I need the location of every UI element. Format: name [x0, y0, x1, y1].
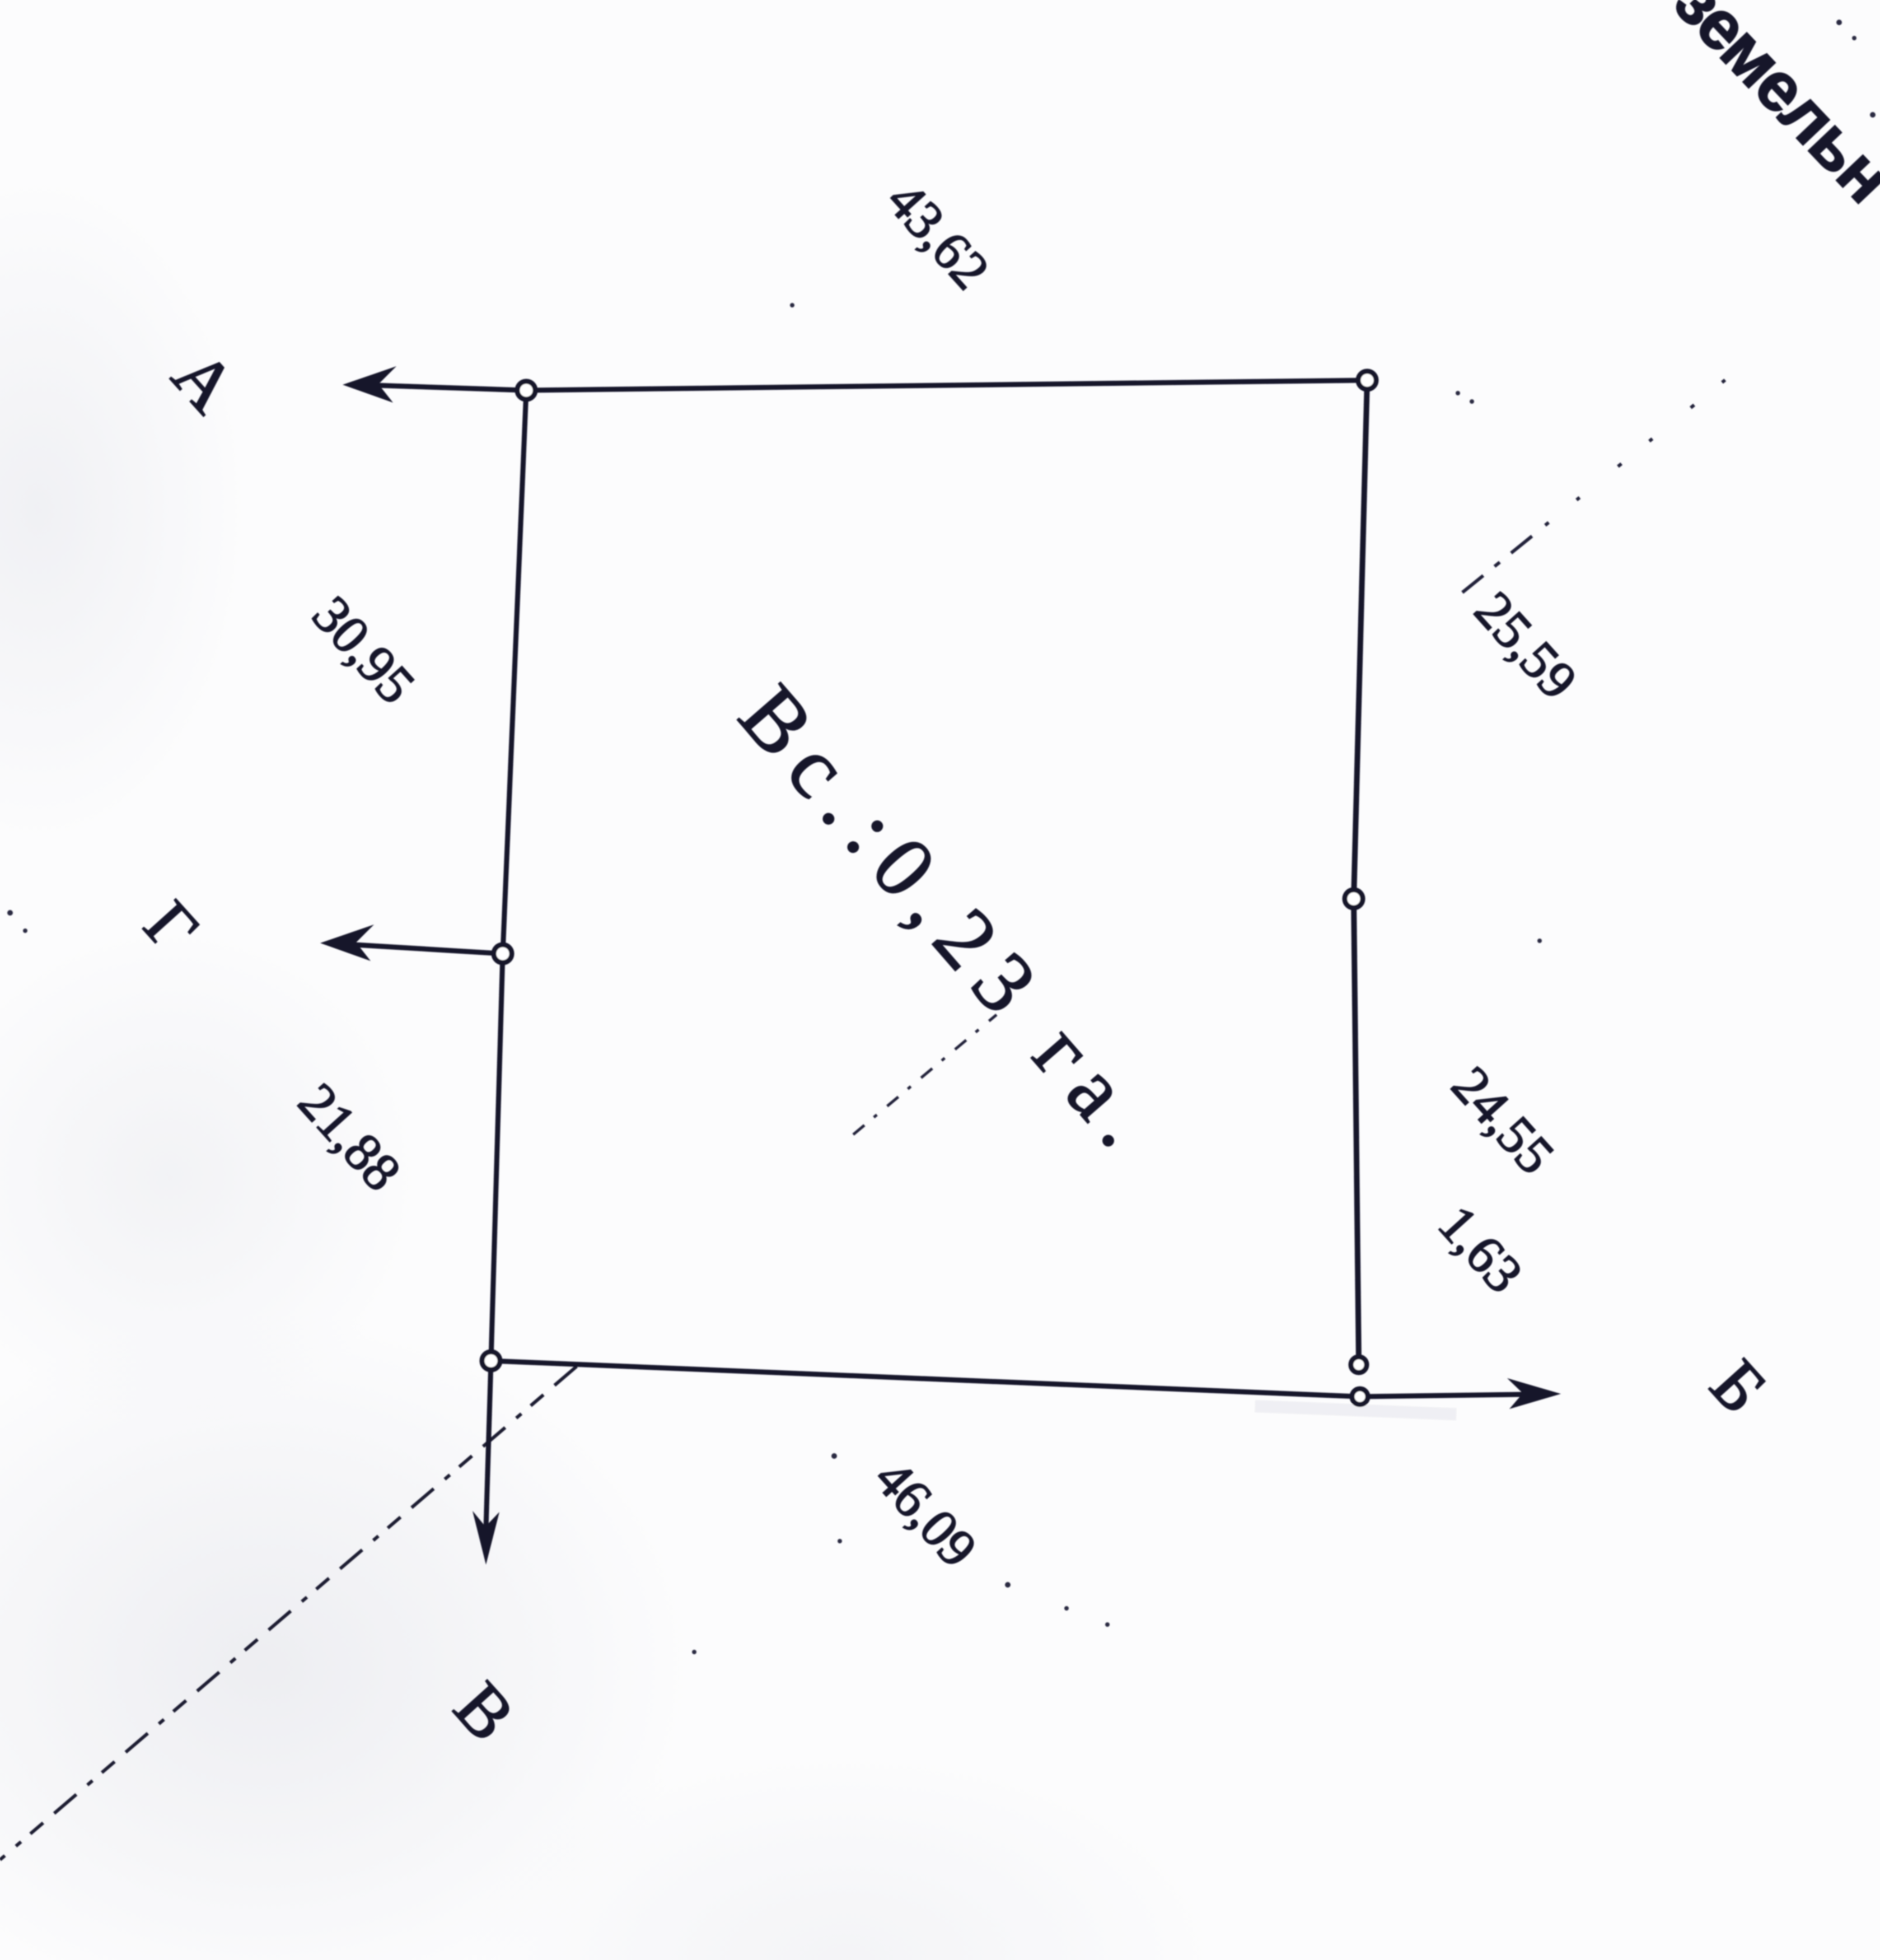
svg-text:А: А	[157, 335, 251, 427]
svg-text:25,59: 25,59	[1463, 580, 1589, 710]
svg-text:Г: Г	[130, 887, 213, 967]
svg-text:46,09: 46,09	[863, 1448, 989, 1578]
svg-text:Б: Б	[1696, 1345, 1783, 1429]
svg-text:43,62: 43,62	[876, 170, 1001, 300]
svg-text:21,88: 21,88	[287, 1072, 413, 1202]
svg-text:Вс.:0,23 га.: Вс.:0,23 га.	[721, 667, 1181, 1175]
svg-text:1,63: 1,63	[1427, 1194, 1535, 1304]
svg-text:24,55: 24,55	[1441, 1055, 1566, 1185]
svg-text:В: В	[439, 1667, 531, 1756]
svg-text:30,95: 30,95	[301, 585, 427, 715]
svg-text:земельн: земельн	[1659, 0, 1880, 216]
